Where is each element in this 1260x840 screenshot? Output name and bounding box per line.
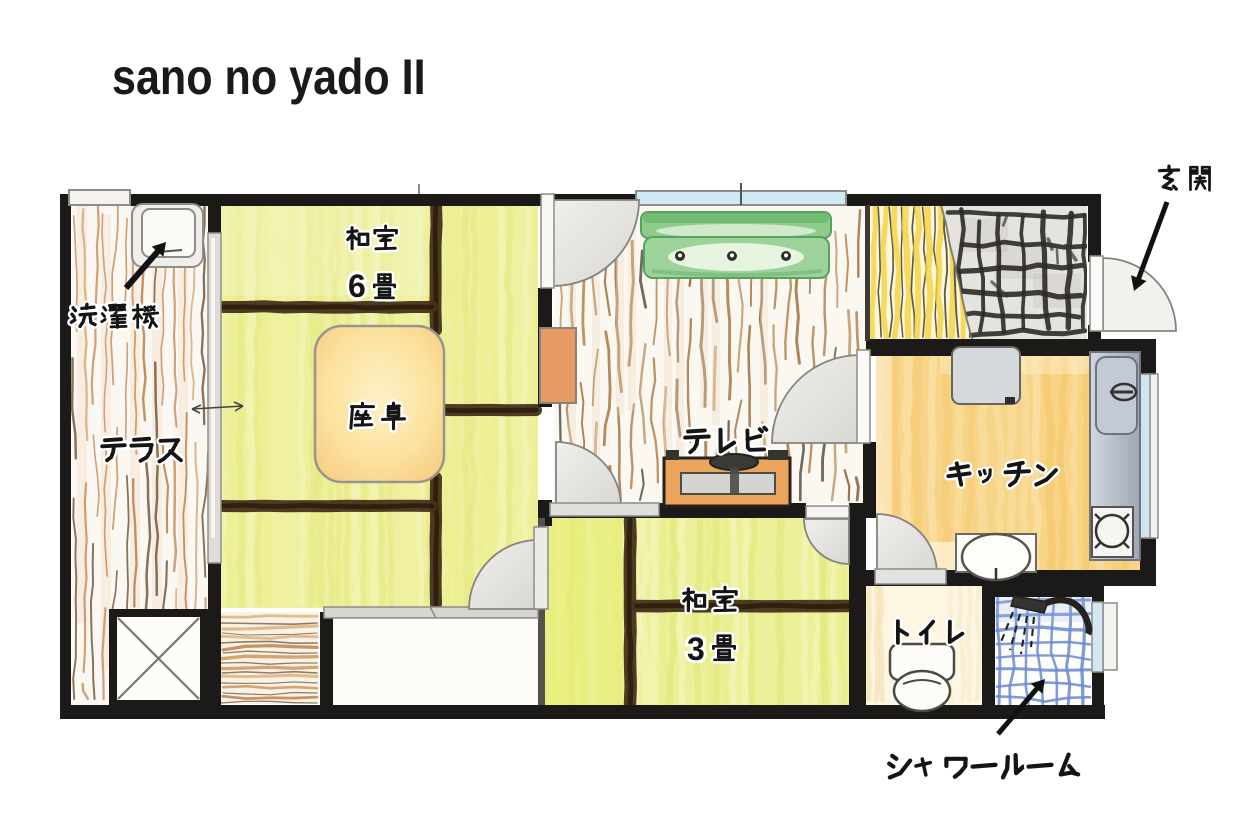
svg-text:6: 6 xyxy=(348,268,366,304)
svg-text:sano no yado II: sano no yado II xyxy=(112,49,426,105)
svg-text:3: 3 xyxy=(687,631,705,667)
